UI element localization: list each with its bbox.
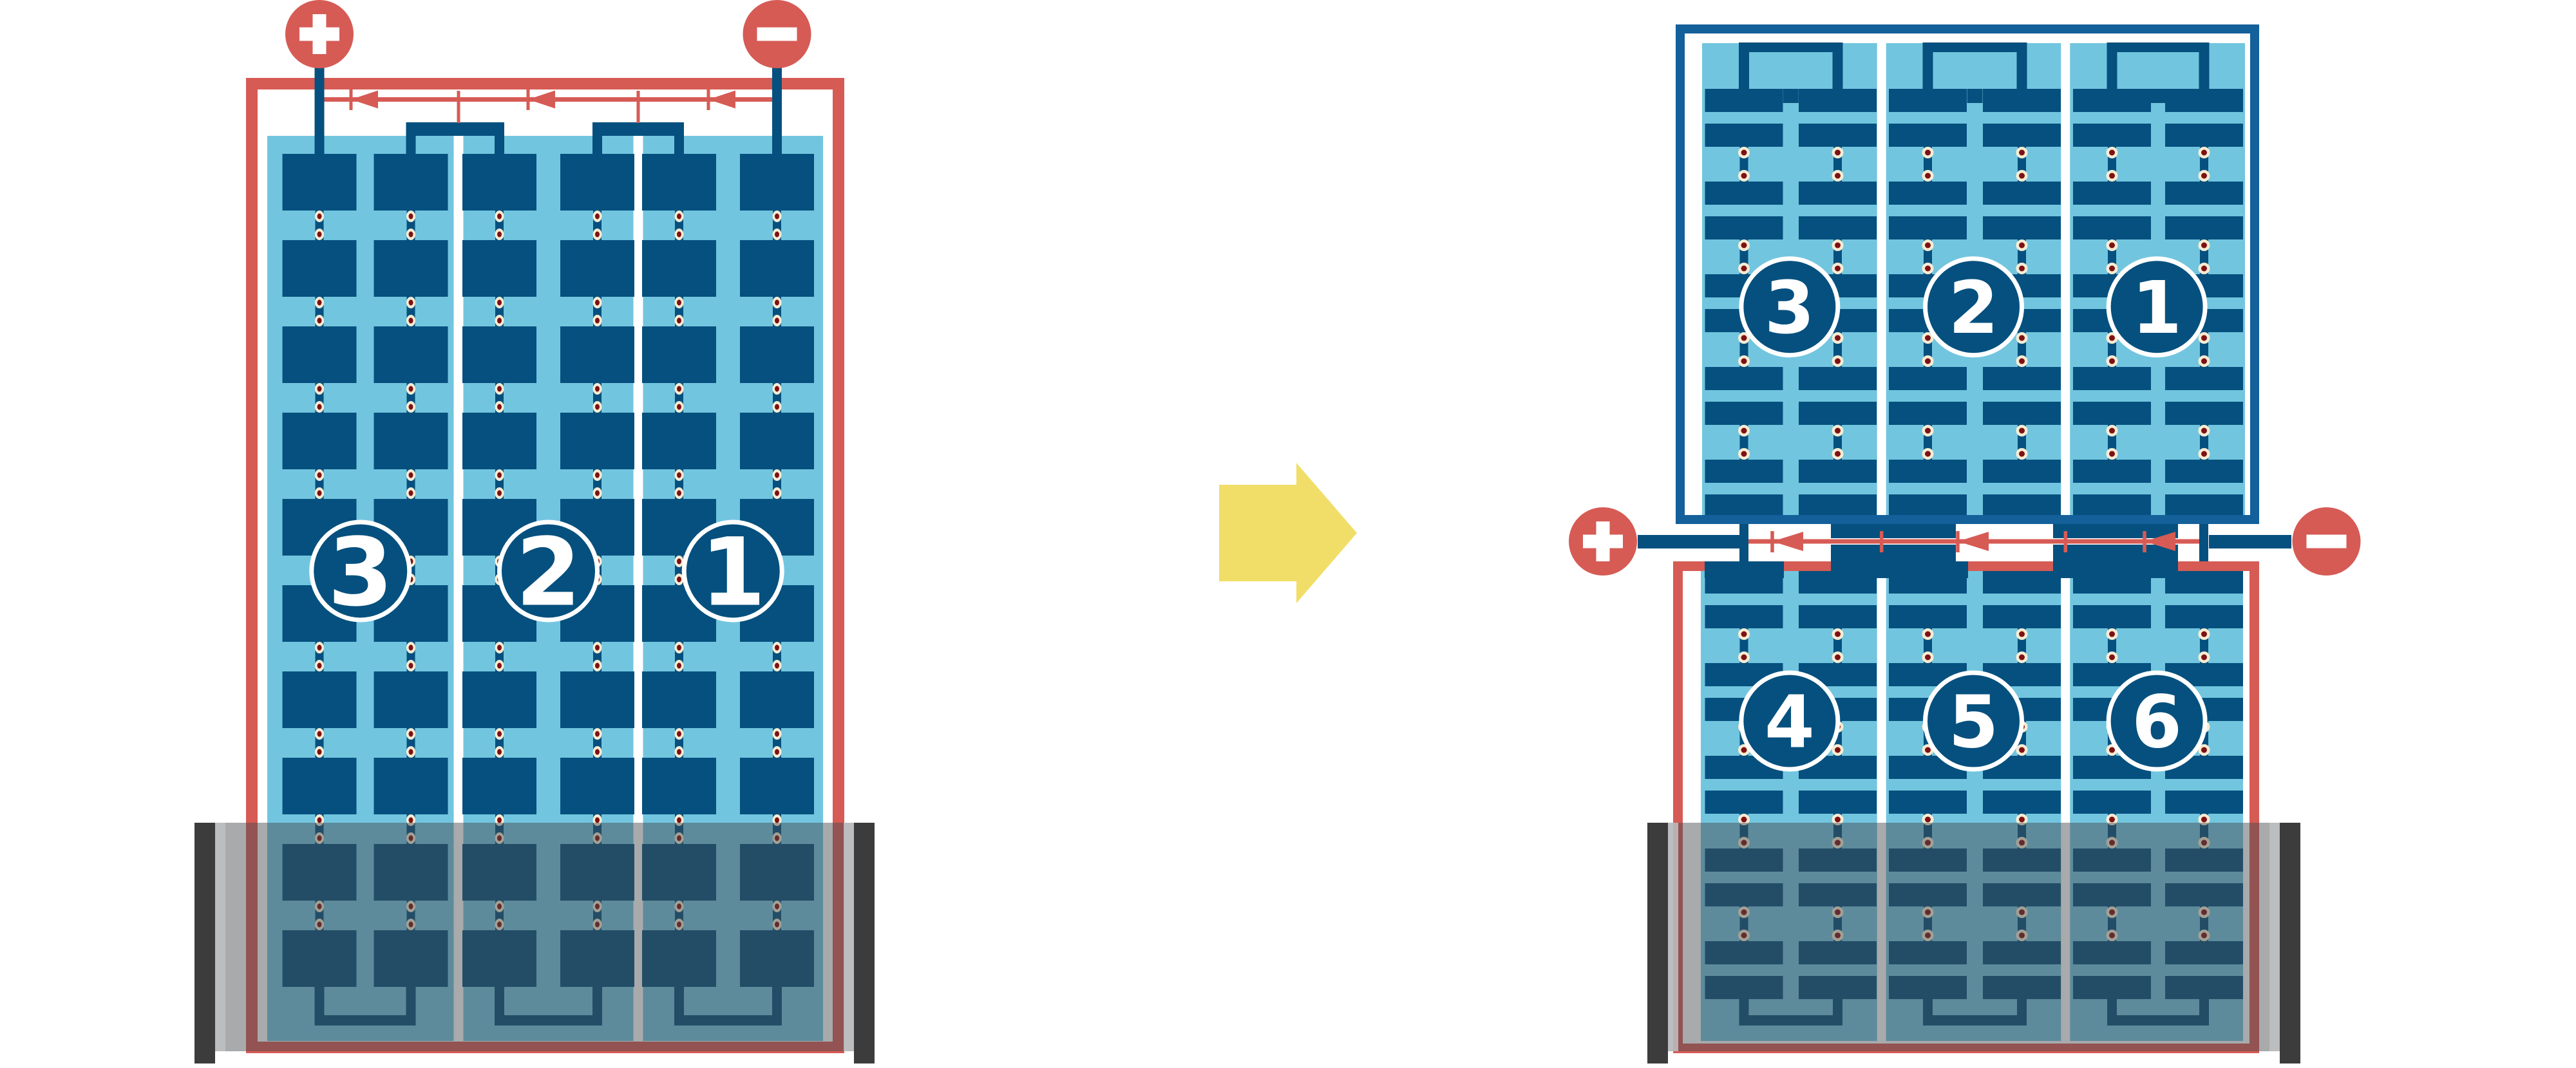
rivet-dot-center [317,386,322,392]
cell-number-label: 1 [700,518,766,628]
negative-terminal-icon [743,0,811,68]
tray-overlay [215,823,854,1051]
negative-stub [2199,524,2208,561]
negative-terminal-icon-glyph-bar [757,28,797,41]
electrode-plate [1705,89,1783,112]
junction-tab-top [1831,524,1956,538]
rivet-dot-center [2201,243,2207,248]
rivet-dot-center [2019,335,2025,341]
battery-tray-left [194,823,875,1063]
rivet-dot-center [677,300,681,306]
electrode-plate [1799,791,1877,814]
rivet-dot-center [317,491,322,496]
rivet-dot-center [1925,359,1931,364]
tray-inner-wall [1668,823,1678,1051]
electrode-plate [1799,182,1877,205]
rivet-dot-center [2201,655,2207,660]
rivet-dot-center [409,318,413,324]
rivet-dot-center [409,818,413,823]
electrode-plate [1983,791,2061,814]
rivet-dot-center [409,749,413,755]
rivet-dot-center [775,300,779,306]
electrode-plate [642,240,716,297]
electrode-plate [1983,367,2061,390]
rivet-dot-center [1835,173,1841,179]
current-line-tick [457,91,460,123]
electrode-plate [740,413,814,469]
electrode-plate [374,671,448,728]
electrode-plate [560,240,634,297]
rivet-dot-center [317,318,322,324]
rivet-dot-center [2201,428,2207,434]
rivet-dot-center [775,318,779,324]
electrode-plate [560,326,634,383]
electrode-plate [642,326,716,383]
rivet-dot-center [595,386,600,392]
rivet-dot-center [409,214,413,220]
rivet-dot-center [497,491,502,496]
tray-side-bar [854,823,875,1063]
rivet-dot-center [497,663,502,669]
rivet-dot-center [1925,747,1931,753]
electrode-plate [462,326,536,383]
electrode-plate [642,671,716,728]
rivet-dot-center [595,232,600,238]
cell-number-badge: 6 [2108,673,2205,769]
electrode-plate [283,326,357,383]
rivet-dot-center [677,404,681,410]
rivet-dot-center [497,404,502,410]
rivet-dot-center [595,300,600,306]
electrode-plate [1889,367,1967,390]
electrode-plate [2165,89,2243,112]
electrode-plate [1705,367,1783,390]
rivet-dot-center [1925,817,1931,823]
rivet-dot-center [1835,335,1841,341]
rivet-dot-center [1835,266,1841,272]
cell-number-label: 6 [2132,680,2182,764]
electrode-plate [740,671,814,728]
electrode-plate [1889,182,1967,205]
electrode-plate [1705,182,1783,205]
rivet-dot-center [1741,655,1747,660]
intercell-busbar [592,122,684,136]
rivet-dot-center [1741,428,1747,434]
rivet-dot-center [1835,632,1841,637]
electrode-plate [1889,494,1967,515]
electrode-plate [1799,89,1877,112]
rivet-dot-center [2019,359,2025,364]
rivet-dot-center [595,663,600,669]
rivet-dot-center [1835,747,1841,753]
rivet-dot-center [317,645,322,651]
rivet-dot-center [775,473,779,478]
rivet-dot-center [595,491,600,496]
rivet-dot-center [595,749,600,755]
rivet-dot-center [677,663,681,669]
rivet-dot-center [677,214,681,220]
electrode-plate [740,240,814,297]
electrode-plate [560,671,634,728]
u-connector-bar [1923,42,2027,52]
junction-tab-top [2053,524,2178,538]
cell-wall [2061,43,2070,515]
rivet-dot-center [2201,150,2207,156]
electrode-plate [1983,402,2061,425]
rivet-dot-center [677,559,681,565]
electrode-plate [2073,494,2151,515]
u-connector-stem [2150,89,2166,103]
rivet-dot-center [775,404,779,410]
rivet-dot-center [2109,451,2115,457]
rivet-dot-center [409,386,413,392]
electrode-plate [283,240,357,297]
tray-side-bar [2280,823,2300,1063]
rivet-dot-center [775,645,779,651]
rivet-dot-center [677,818,681,823]
tray-side-bar [194,823,215,1063]
rivet-dot-center [595,818,600,823]
battery-restructure-diagram: 321321456 [0,0,2576,1068]
electrode-plate [1799,402,1877,425]
rivet-dot-center [2019,150,2025,156]
cell-number-badge: 3 [1741,259,1838,355]
electrode-plate [740,758,814,814]
rivet-dot-center [1925,655,1931,660]
electrode-plate [1889,89,1967,112]
electrode-plate [642,154,716,211]
electrode-plate [1983,124,2061,147]
rivet-dot-center [2019,243,2025,248]
electrode-plate [2073,124,2151,147]
rivet-dot-center [595,645,600,651]
electrode-plate [2165,402,2243,425]
electrode-plate [374,758,448,814]
rivet-dot-center [2201,747,2207,753]
electrode-plate [2165,791,2243,814]
electrode-plate [2073,402,2151,425]
electrode-plate [1799,460,1877,483]
electrode-plate [2073,791,2151,814]
intercell-busbar-leg [495,122,504,158]
rivet-dot-center [2201,335,2207,341]
rivet-dot-center [497,473,502,478]
right-top-module: 321 [1676,29,2259,524]
rivet-dot-center [1741,359,1747,364]
electrode-plate [462,413,536,469]
u-connector-leg [2199,52,2210,90]
rivet-dot-center [497,818,502,823]
electrode-plate [374,326,448,383]
rivet-dot-center [1741,173,1747,179]
u-connector-stem [1967,89,1983,103]
rivet-dot-center [1925,150,1931,156]
electrode-plate [1799,216,1877,239]
rivet-dot-center [2109,150,2115,156]
rivet-dot-center [1835,150,1841,156]
rivet-dot-center [677,318,681,324]
positive-terminal-post [315,64,325,158]
electrode-plate [462,154,536,211]
rivet-dot-center [409,300,413,306]
rivet-dot-center [2201,359,2207,364]
rivet-dot-center [677,473,681,478]
cell-number-badge: 2 [1926,259,2022,355]
rivet-dot-center [1835,655,1841,660]
rivet-dot-center [677,232,681,238]
electrode-plate [1705,402,1783,425]
electrode-plate [740,154,814,211]
electrode-plate [560,758,634,814]
electrode-plate [462,758,536,814]
current-line-tick [1880,531,1884,552]
electrode-plate [2073,460,2151,483]
rivet-dot-center [317,818,322,823]
electrode-plate [1983,460,2061,483]
rivet-dot-center [775,731,779,737]
rivet-dot-center [775,491,779,496]
negative-terminal-icon-glyph-bar [2307,535,2347,548]
cell-wall [1877,43,1886,515]
rivet-dot-center [2109,359,2115,364]
cell-number-badge: 5 [1926,673,2022,769]
cell-number-label: 4 [1765,680,1815,764]
rivet-dot-center [1835,451,1841,457]
electrode-plate [374,154,448,211]
rivet-dot-center [2019,817,2025,823]
rivet-dot-center [497,731,502,737]
u-connector-leg [1739,52,1749,90]
rivet-dot-center [1741,451,1747,457]
intercell-busbar-leg [406,122,416,158]
intercell-busbar-leg [592,122,602,158]
rivet-dot-center [1741,632,1747,637]
rivet-dot-center [317,731,322,737]
electrode-plate [1705,494,1783,515]
cell-number-badge: 1 [2108,259,2205,355]
rivet-dot-center [595,214,600,220]
electrode-plate [2165,494,2243,515]
rivet-dot-center [497,214,502,220]
electrode-plate [2165,605,2243,628]
rivet-dot-center [1925,632,1931,637]
rivet-dot-center [497,300,502,306]
electrode-plate [1799,494,1877,515]
rivet-dot-center [2019,655,2025,660]
rivet-dot-center [1925,266,1931,272]
rivet-dot-center [2109,335,2115,341]
rivet-dot-center [1741,747,1747,753]
intercell-busbar-leg [674,122,684,158]
electrode-plate [560,154,634,211]
electrode-plate [1705,605,1783,628]
electrode-plate [2073,216,2151,239]
rivet-dot-center [2109,747,2115,753]
stack-cap [1889,561,1968,578]
rivet-dot-center [497,386,502,392]
electrode-plate [1983,494,2061,515]
rivet-dot-center [317,663,322,669]
electrode-plate [2073,182,2151,205]
rivet-dot-center [1925,451,1931,457]
battery-tray-right [1647,823,2300,1063]
rivet-dot-center [775,386,779,392]
cell-number-label: 3 [1765,267,1815,350]
cell-number-label: 2 [1949,267,1999,350]
current-line-tick [2064,531,2068,552]
rivet-dot-center [1925,335,1931,341]
rivet-dot-center [775,232,779,238]
cell-number-label: 3 [328,518,393,628]
rivet-dot-center [1741,817,1747,823]
electrode-plate [1983,216,2061,239]
electrode-plate [283,413,357,469]
rivet-dot-center [2109,817,2115,823]
current-line-tick [637,91,640,123]
rivet-dot-center [2019,451,2025,457]
stack-cap [2073,561,2152,578]
electrode-plate [374,240,448,297]
electrode-plate [642,758,716,814]
u-connector-bar [2107,42,2210,52]
rivet-dot-center [2019,173,2025,179]
electrode-plate [740,326,814,383]
rivet-dot-center [1835,817,1841,823]
rivet-dot-center [677,749,681,755]
rivet-dot-center [497,318,502,324]
rivet-dot-center [677,577,681,583]
electrode-plate [1889,124,1967,147]
electrode-plate [2165,182,2243,205]
electrode-plate [1705,791,1783,814]
rivet-dot-center [317,404,322,410]
electrode-plate [1889,791,1967,814]
positive-terminal-icon-glyph-bar-vertical [1596,521,1610,561]
tray-inner-wall [215,823,225,1051]
rivet-dot-center [677,386,681,392]
tray-inner-wall [2269,823,2280,1051]
tray-side-bar [1647,823,1668,1063]
electrode-plate [1983,182,2061,205]
electrode-plate [1705,216,1783,239]
tray-overlay [1668,823,2280,1051]
rivet-dot-center [677,645,681,651]
negative-terminal-bar [2209,535,2291,548]
rivet-dot-center [317,473,322,478]
positive-terminal-icon [285,0,354,68]
rivet-dot-center [497,232,502,238]
electrode-plate [283,671,357,728]
rivet-dot-center [497,645,502,651]
electrode-plate [560,413,634,469]
u-connector-bar [1739,42,1843,52]
rivet-dot-center [1741,266,1747,272]
rivet-dot-center [409,473,413,478]
electrode-plate [2073,605,2151,628]
rivet-dot-center [2109,655,2115,660]
electrode-plate [374,413,448,469]
electrode-plate [2165,460,2243,483]
rivet-dot-center [317,232,322,238]
rivet-dot-center [595,404,600,410]
rivet-dot-center [2019,428,2025,434]
u-connector-leg [2107,52,2117,90]
rivet-dot-center [317,300,322,306]
electrode-plate [462,671,536,728]
rivet-dot-center [2019,632,2025,637]
rivet-dot-center [1741,335,1747,341]
rivet-dot-center [2201,451,2207,457]
top-module-bottom-bar [1676,515,2259,524]
rivet-dot-center [1835,428,1841,434]
electrode-plate [642,413,716,469]
negative-terminal-post [772,64,782,158]
electrode-plate [1889,216,1967,239]
positive-terminal-icon-glyph-bar-vertical [313,14,327,54]
electrode-plate [2073,89,2151,112]
diagram-svg: 321321456 [0,0,2576,1068]
rivet-dot-center [409,663,413,669]
negative-terminal-icon [2293,507,2361,576]
rivet-dot-center [1741,243,1747,248]
electrode-plate [2165,216,2243,239]
electrode-plate [1705,124,1783,147]
electrode-plate [1983,605,2061,628]
electrode-plate [1983,89,2061,112]
electrode-plate [2165,124,2243,147]
rivet-dot-center [317,749,322,755]
electrode-plate [1799,124,1877,147]
tray-inner-wall [844,823,854,1051]
electrode-plate [1889,605,1967,628]
electrode-plate [1799,605,1877,628]
rivet-dot-center [2019,266,2025,272]
rivet-dot-center [497,749,502,755]
stack-cap [1705,561,1784,578]
electrode-plate [2073,367,2151,390]
electrode-plate [283,758,357,814]
positive-terminal-icon [1569,507,1637,576]
rivet-dot-center [409,232,413,238]
rivet-dot-center [677,491,681,496]
electrode-plate [1889,402,1967,425]
cell-number-label: 5 [1949,680,1999,764]
rivet-dot-center [1835,243,1841,248]
rivet-dot-center [775,214,779,220]
electrode-plate [283,154,357,211]
rivet-dot-center [595,473,600,478]
rivet-dot-center [409,645,413,651]
rivet-dot-center [2201,632,2207,637]
u-connector-leg [2017,52,2027,90]
rivet-dot-center [1741,150,1747,156]
rivet-dot-center [2109,266,2115,272]
rivet-dot-center [2109,428,2115,434]
rivet-dot-center [595,318,600,324]
rivet-dot-center [2109,243,2115,248]
rivet-dot-center [409,404,413,410]
u-connector-leg [1923,52,1933,90]
rivet-dot-center [775,749,779,755]
rivet-dot-center [2019,747,2025,753]
rivet-dot-center [2201,817,2207,823]
rivet-dot-center [409,491,413,496]
rivet-dot-center [677,731,681,737]
u-connector-leg [1833,52,1843,90]
rivet-dot-center [1925,428,1931,434]
rivet-dot-center [2201,266,2207,272]
rivet-dot-center [2109,173,2115,179]
